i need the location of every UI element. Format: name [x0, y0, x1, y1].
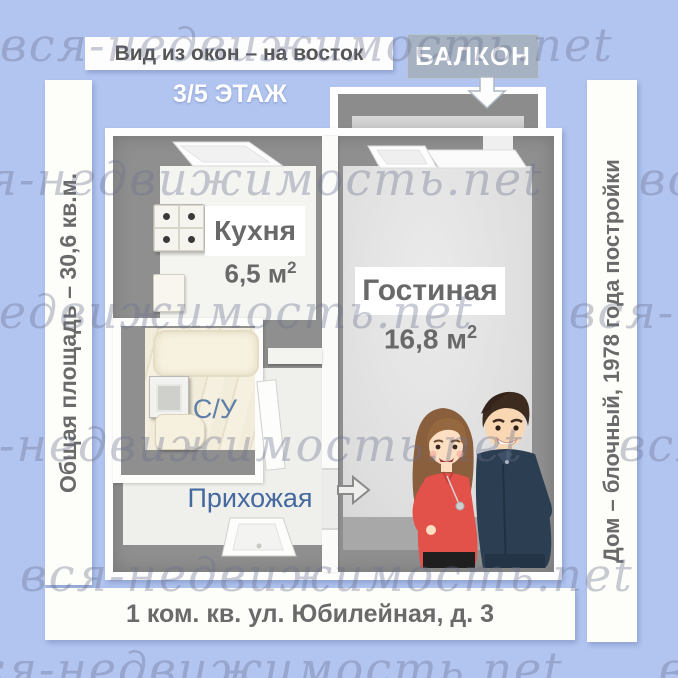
- kitchen-area-label: 6,5 м2: [203, 258, 318, 290]
- building-info-bar: Дом – блочный, 1978 года постройки: [587, 80, 637, 642]
- address-bar: 1 ком. кв. ул. Юбилейная, д. 3: [45, 588, 575, 640]
- kitchen-name-text: Кухня: [214, 215, 296, 247]
- balcony-text: БАЛКОН: [415, 41, 531, 72]
- hallway-label: Прихожая: [177, 483, 323, 514]
- kitchen-label: Кухня: [205, 206, 305, 256]
- apartment-plan: Кухня 6,5 м2 Гостиная 16,8 м2 С/У Прихож…: [105, 128, 562, 580]
- couple-illustration: [385, 384, 560, 568]
- balcony-structure: [330, 87, 546, 132]
- balcony-badge: БАЛКОН: [407, 34, 539, 79]
- living-room-window: [363, 140, 538, 170]
- building-info-text: Дом – блочный, 1978 года постройки: [587, 80, 637, 642]
- bathroom-label: С/У: [183, 394, 247, 425]
- stove-icon: [153, 204, 205, 252]
- total-area-bar: Общая площадь – 30,6 кв.м.: [45, 80, 92, 585]
- kitchen-sink-icon: [153, 274, 185, 312]
- living-room-label: Гостиная: [355, 267, 505, 315]
- address-text: 1 ком. кв. ул. Юбилейная, д. 3: [126, 600, 494, 629]
- floor-number-label: 3/5 ЭТАЖ: [173, 80, 287, 109]
- floorplan-poster: Кухня 6,5 м2 Гостиная 16,8 м2 С/У Прихож…: [0, 0, 678, 678]
- watermark-text: вся-недвижимость.netвся-недвижимость.net: [0, 642, 678, 678]
- entrance-door: [215, 514, 305, 560]
- balcony-walls: [338, 94, 538, 132]
- living-room-name-text: Гостиная: [362, 274, 498, 308]
- total-area-text: Общая площадь – 30,6 кв.м.: [45, 80, 92, 585]
- view-direction-box: Вид из окон – на восток: [85, 37, 393, 70]
- balcony-arrow-icon: [467, 76, 507, 110]
- view-direction-text: Вид из окон – на восток: [115, 42, 364, 66]
- living-room-area-label: 16,8 м2: [363, 322, 498, 355]
- hallway-shelf: [268, 348, 322, 364]
- doorway-arrow-icon: [336, 474, 372, 507]
- kitchen-window: [165, 140, 290, 168]
- bathtub-icon: [153, 330, 259, 377]
